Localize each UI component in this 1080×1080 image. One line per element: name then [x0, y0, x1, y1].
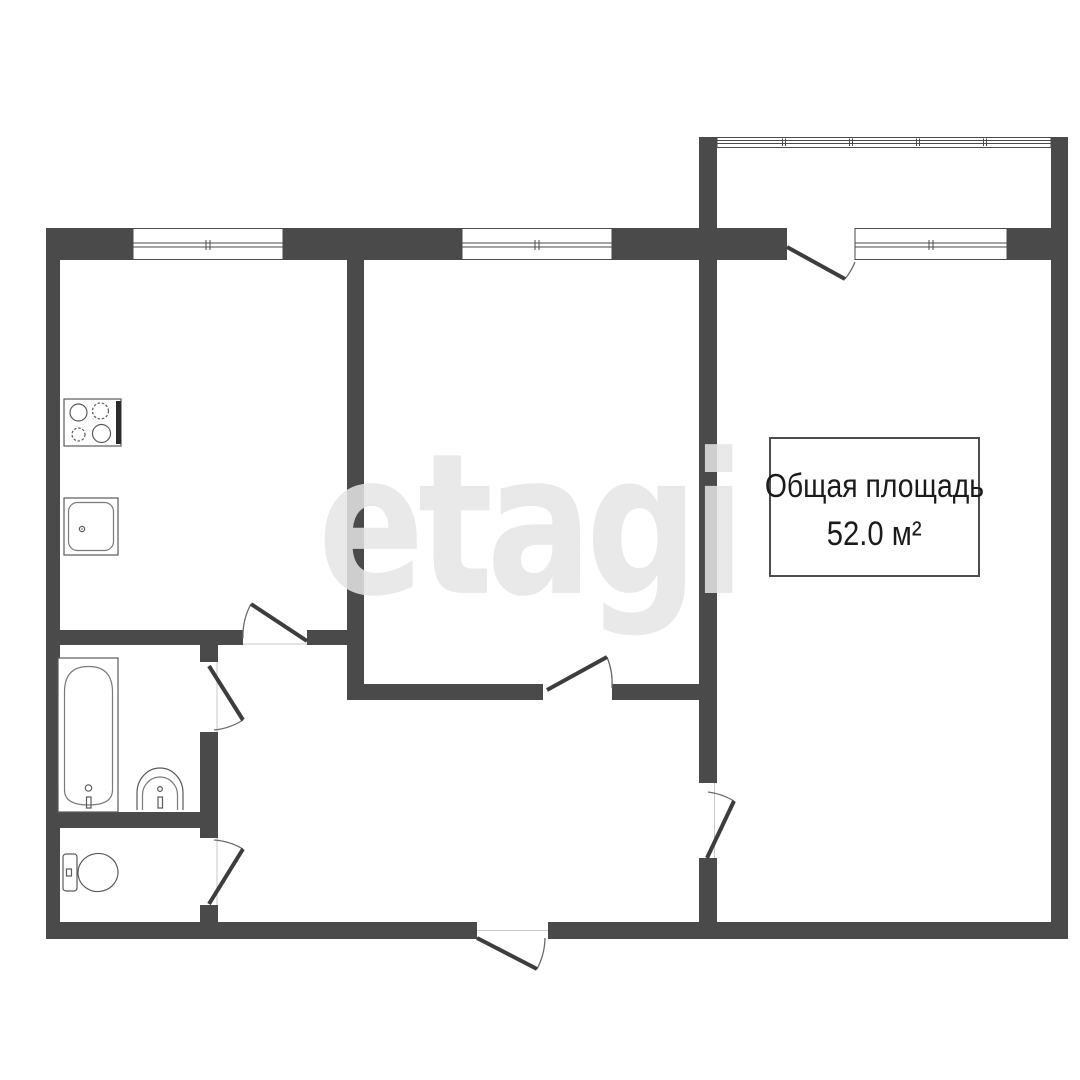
door-middle-room-leaf — [547, 657, 607, 690]
door-bathroom-arc — [214, 720, 243, 730]
door-right-room-arc — [708, 792, 734, 801]
watermark-etagi-logo: etagi — [318, 428, 739, 624]
door-kitchen-leaf — [251, 604, 307, 641]
wall-middleroom-bottom-1 — [347, 684, 543, 700]
wall-bath-right-1 — [200, 645, 218, 662]
door-balcony-leaf — [787, 247, 845, 279]
wall-top-segment-1 — [46, 228, 133, 260]
wall-kitchen-bottom-1 — [46, 630, 243, 645]
wall-bottom-segment-2 — [548, 922, 1068, 939]
window-balcony-exit — [855, 229, 1007, 260]
wall-bottom-segment-1 — [46, 922, 477, 939]
door-entrance — [477, 938, 545, 969]
door-balcony-arc — [845, 262, 855, 279]
door-toilet-leaf — [209, 849, 243, 904]
kitchen-sink-icon — [64, 498, 118, 555]
window-balcony-glazing — [717, 138, 1051, 148]
door-balcony — [787, 247, 855, 279]
stove-icon — [64, 399, 121, 446]
window-kitchen — [133, 229, 283, 260]
wall-toilet-right — [200, 905, 218, 922]
door-kitchen-arc — [243, 604, 251, 638]
washbasin-icon — [137, 768, 183, 810]
door-bathroom-leaf — [209, 666, 243, 720]
wall-top-segment-4 — [1007, 228, 1051, 260]
wall-top-segment-2 — [283, 228, 462, 260]
door-entrance-leaf — [477, 938, 537, 969]
window-middle-room — [462, 229, 612, 260]
door-toilet — [209, 840, 243, 904]
door-right-room — [707, 792, 734, 858]
wall-top-segment-3 — [612, 228, 787, 260]
windows — [133, 138, 1051, 260]
wall-balcony-left — [699, 137, 717, 228]
door-toilet-arc — [214, 840, 243, 849]
bathtub-icon — [58, 658, 118, 812]
wall-right-outer — [1051, 137, 1068, 939]
wall-bath-right-2 — [200, 732, 218, 838]
door-right-room-leaf — [707, 801, 734, 858]
area-label-title: Общая площадь — [765, 467, 984, 505]
wall-bath-toilet-divider — [46, 812, 218, 828]
door-kitchen — [243, 604, 307, 641]
door-bathroom — [209, 666, 243, 730]
wall-left-outer — [46, 228, 60, 939]
door-middle-room — [547, 657, 612, 690]
area-label-box: Общая площадь 52.0 м² — [769, 437, 980, 577]
floor-plan-canvas: etagi Общая площадь 52.0 м² — [0, 0, 1080, 1080]
wall-divider-right-2 — [699, 858, 717, 922]
door-entrance-arc — [537, 938, 545, 969]
toilet-icon — [63, 851, 120, 894]
area-label-value: 52.0 м² — [827, 515, 922, 554]
door-middle-room-arc — [607, 657, 612, 688]
